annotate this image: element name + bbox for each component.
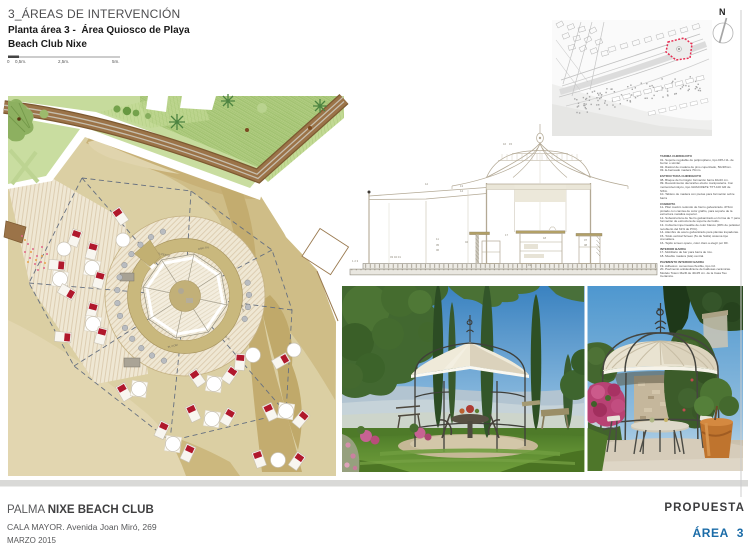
svg-text:04: 04 [465,240,469,244]
svg-text:16: 16 [503,142,507,146]
svg-text:08: 08 [584,243,588,247]
svg-text:1 2 3: 1 2 3 [352,259,359,263]
svg-text:17: 17 [505,233,509,237]
svg-text:06: 06 [436,248,440,252]
svg-text:13: 13 [460,184,464,188]
svg-text:11: 11 [436,237,439,241]
svg-text:05: 05 [436,243,440,247]
svg-text:18: 18 [543,236,547,240]
svg-text:19: 19 [528,263,532,267]
svg-text:07: 07 [584,238,588,242]
svg-text:03 02 01: 03 02 01 [390,255,401,259]
svg-text:12: 12 [425,182,429,186]
svg-text:15: 15 [509,142,513,146]
svg-text:14: 14 [460,189,464,193]
